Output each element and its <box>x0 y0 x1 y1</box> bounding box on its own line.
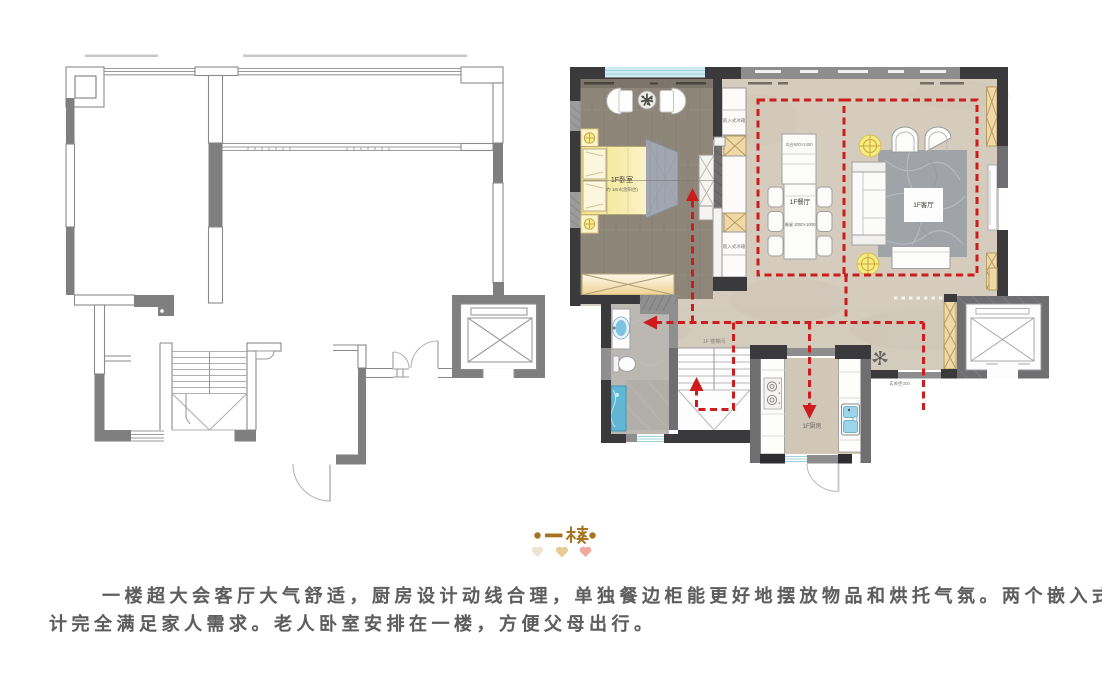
svg-text:餐桌 2000×1000: 餐桌 2000×1000 <box>785 221 816 228</box>
svg-text:1F餐厅: 1F餐厅 <box>790 197 811 206</box>
svg-text:嵌入式冰箱: 嵌入式冰箱 <box>723 243 746 250</box>
svg-text:1F 楼梯间: 1F 楼梯间 <box>703 338 725 345</box>
svg-text:1F卧室: 1F卧室 <box>611 175 633 184</box>
svg-text:岛台600×2400: 岛台600×2400 <box>785 141 813 148</box>
svg-text:约 18㎡(含阳台): 约 18㎡(含阳台) <box>606 186 638 193</box>
svg-text:1F厨房: 1F厨房 <box>802 422 821 430</box>
svg-text:1F客厅: 1F客厅 <box>913 200 934 209</box>
svg-text:玄关柜300: 玄关柜300 <box>889 380 911 387</box>
svg-text:嵌入式冰箱: 嵌入式冰箱 <box>723 117 746 124</box>
